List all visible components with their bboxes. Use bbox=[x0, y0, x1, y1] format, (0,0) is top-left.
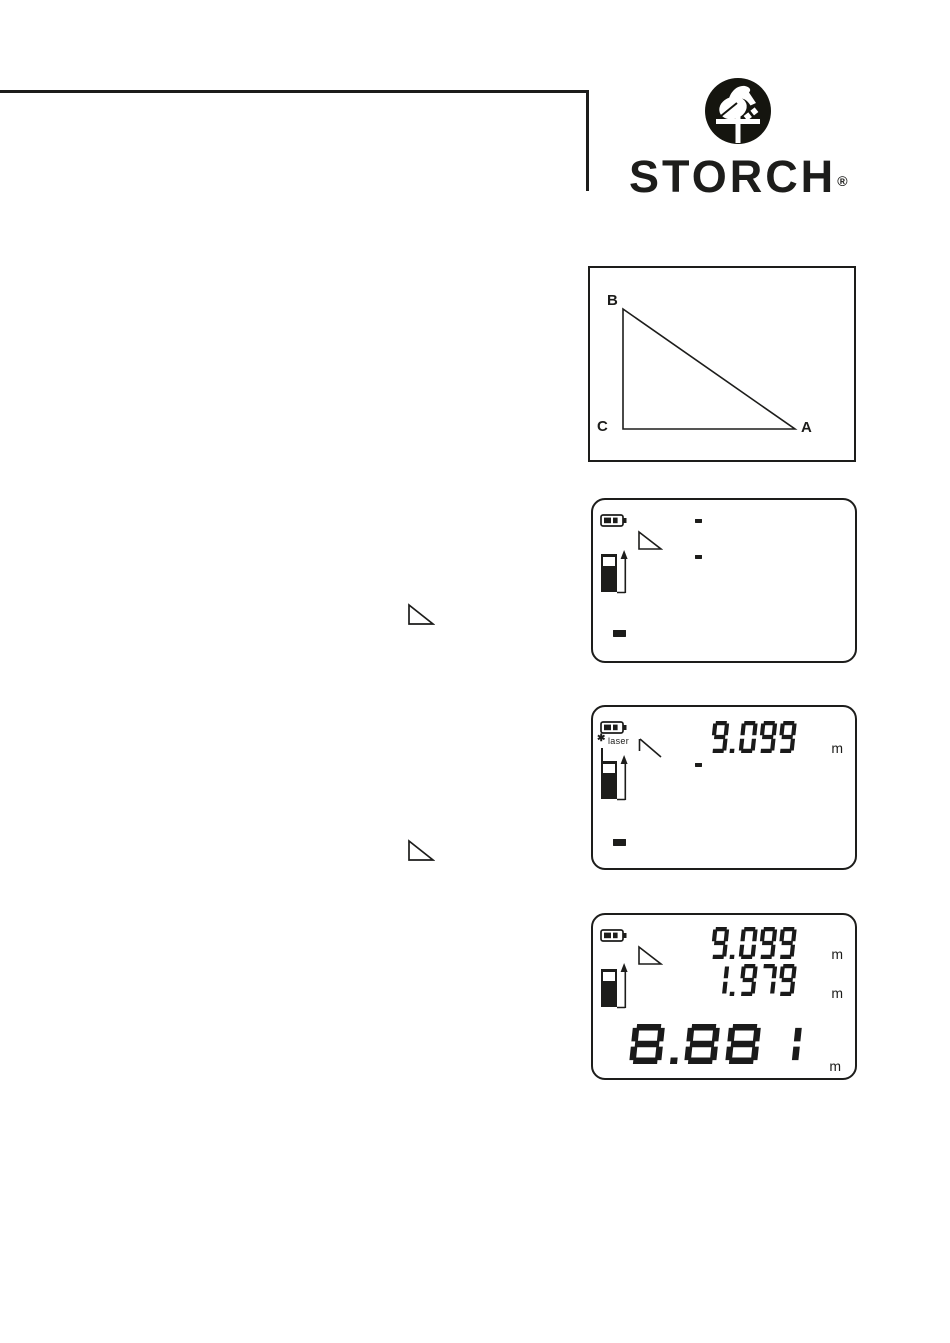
indirect-measure-triangle-partial-icon bbox=[637, 737, 663, 759]
measure-direction-arrow-icon bbox=[616, 755, 628, 801]
vertex-label-b: B bbox=[607, 292, 618, 309]
laser-device-icon bbox=[601, 761, 617, 799]
brand-name: STORCH bbox=[629, 151, 836, 202]
indirect-measure-triangle-icon bbox=[637, 945, 663, 967]
reading-line1-unit: m bbox=[831, 946, 843, 962]
header-vertical-rule bbox=[586, 90, 589, 191]
measure-direction-arrow-icon bbox=[616, 550, 628, 594]
vertex-label-a: A bbox=[801, 419, 812, 436]
laser-device-icon bbox=[601, 969, 617, 1007]
reading-line1-unit: m bbox=[831, 740, 843, 756]
header-horizontal-rule bbox=[0, 90, 589, 93]
vertex-label-c: C bbox=[597, 418, 608, 435]
dash-segment bbox=[613, 630, 626, 637]
registered-mark: ® bbox=[837, 173, 847, 189]
laser-device-icon bbox=[601, 554, 617, 592]
dash-segment bbox=[695, 519, 702, 522]
measure-direction-arrow-icon bbox=[616, 963, 628, 1009]
laser-label: laser bbox=[608, 736, 629, 746]
dash-segment bbox=[695, 555, 702, 558]
manual-page: STORCH® B C A bbox=[0, 0, 950, 1343]
laser-star-icon: ✱ bbox=[597, 733, 605, 744]
battery-icon bbox=[600, 929, 627, 942]
triangle-figure bbox=[590, 268, 854, 460]
reading-line2-unit: m bbox=[831, 985, 843, 1001]
dash-segment bbox=[695, 763, 702, 766]
lcd-display-result: m m m bbox=[591, 913, 857, 1080]
laser-beam-line bbox=[601, 748, 603, 761]
lcd-display-first-measurement: ✱ laser m bbox=[591, 705, 857, 870]
brand-wordmark: STORCH® bbox=[629, 151, 869, 203]
battery-icon bbox=[600, 514, 627, 527]
stork-icon bbox=[704, 77, 772, 145]
indirect-measure-triangle-icon bbox=[407, 839, 435, 863]
dash-segment bbox=[613, 839, 626, 846]
device-screen bbox=[603, 972, 615, 981]
device-screen bbox=[603, 557, 615, 566]
indirect-measure-triangle-icon bbox=[637, 530, 663, 552]
reading-main-unit: m bbox=[829, 1058, 841, 1074]
device-screen bbox=[603, 764, 615, 773]
indirect-measure-triangle-icon bbox=[407, 603, 435, 627]
lcd-display-ready bbox=[591, 498, 857, 663]
triangle-diagram: B C A bbox=[588, 266, 856, 462]
